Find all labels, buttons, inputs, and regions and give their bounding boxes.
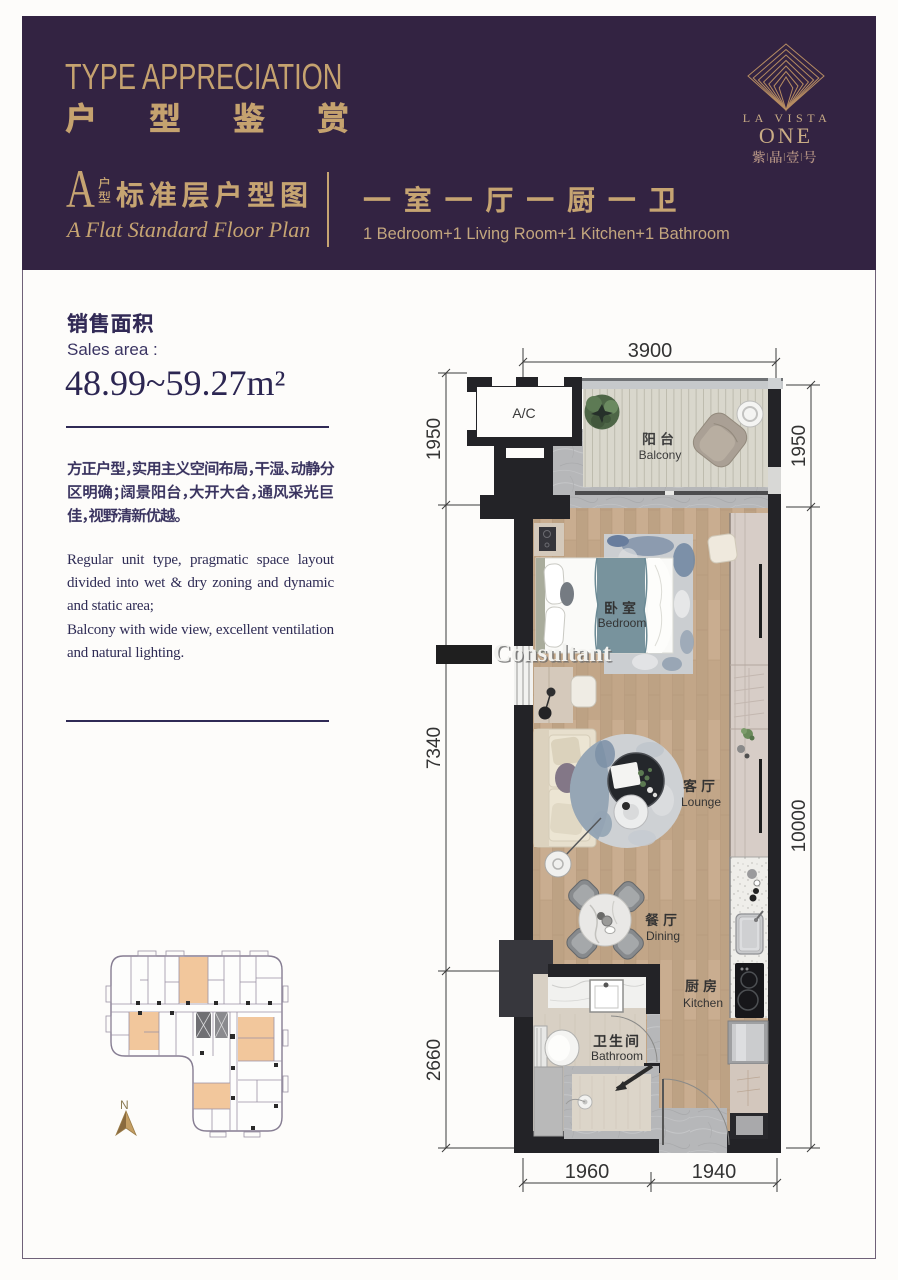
svg-text:Lounge: Lounge (681, 795, 721, 809)
svg-text:7340: 7340 (424, 727, 445, 769)
svg-text:Bathroom: Bathroom (591, 1049, 643, 1063)
svg-text:Consultant: Consultant (493, 640, 612, 667)
svg-text:A/C: A/C (512, 405, 535, 421)
svg-text:2660: 2660 (424, 1039, 445, 1081)
svg-text:1950: 1950 (424, 418, 445, 460)
svg-text:1960: 1960 (565, 1161, 610, 1183)
svg-text:Balcony: Balcony (639, 448, 682, 462)
svg-text:3900: 3900 (628, 340, 673, 362)
svg-text:1950: 1950 (789, 425, 810, 467)
svg-text:Dining: Dining (646, 929, 680, 943)
svg-text:Bedroom: Bedroom (598, 616, 647, 630)
svg-text:10000: 10000 (789, 800, 810, 853)
svg-text:1940: 1940 (692, 1161, 737, 1183)
svg-text:Kitchen: Kitchen (683, 996, 723, 1010)
svg-text:N: N (120, 1098, 129, 1112)
